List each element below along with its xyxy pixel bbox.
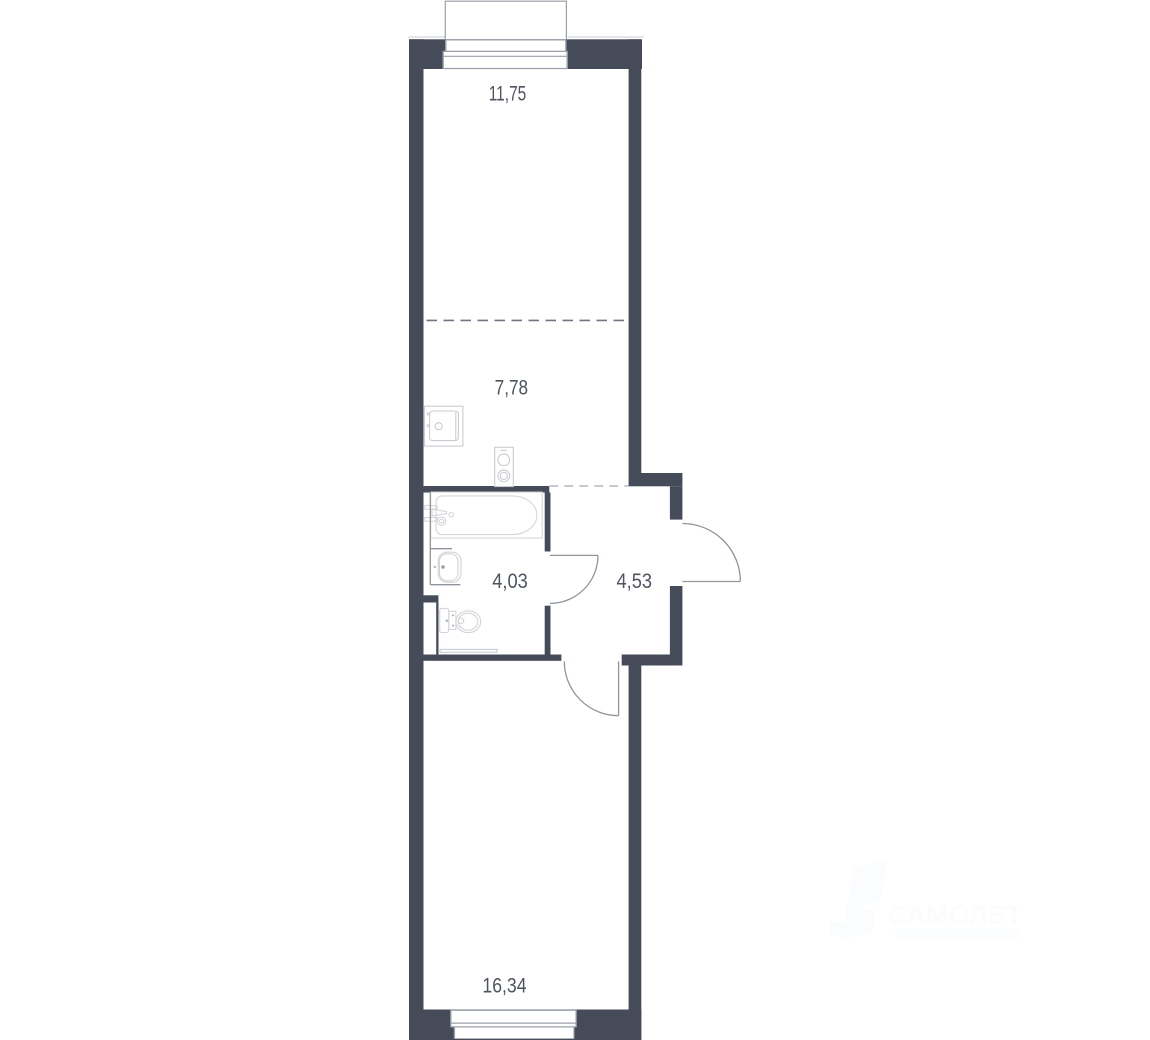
svg-text:4,53: 4,53 bbox=[617, 570, 653, 594]
svg-text:16,34: 16,34 bbox=[482, 974, 526, 998]
svg-text:4,03: 4,03 bbox=[492, 570, 528, 594]
svg-text:11,75: 11,75 bbox=[489, 81, 527, 105]
svg-text:САМОЛЕТ: САМОЛЕТ bbox=[888, 900, 1023, 930]
svg-text:7,78: 7,78 bbox=[495, 376, 528, 400]
